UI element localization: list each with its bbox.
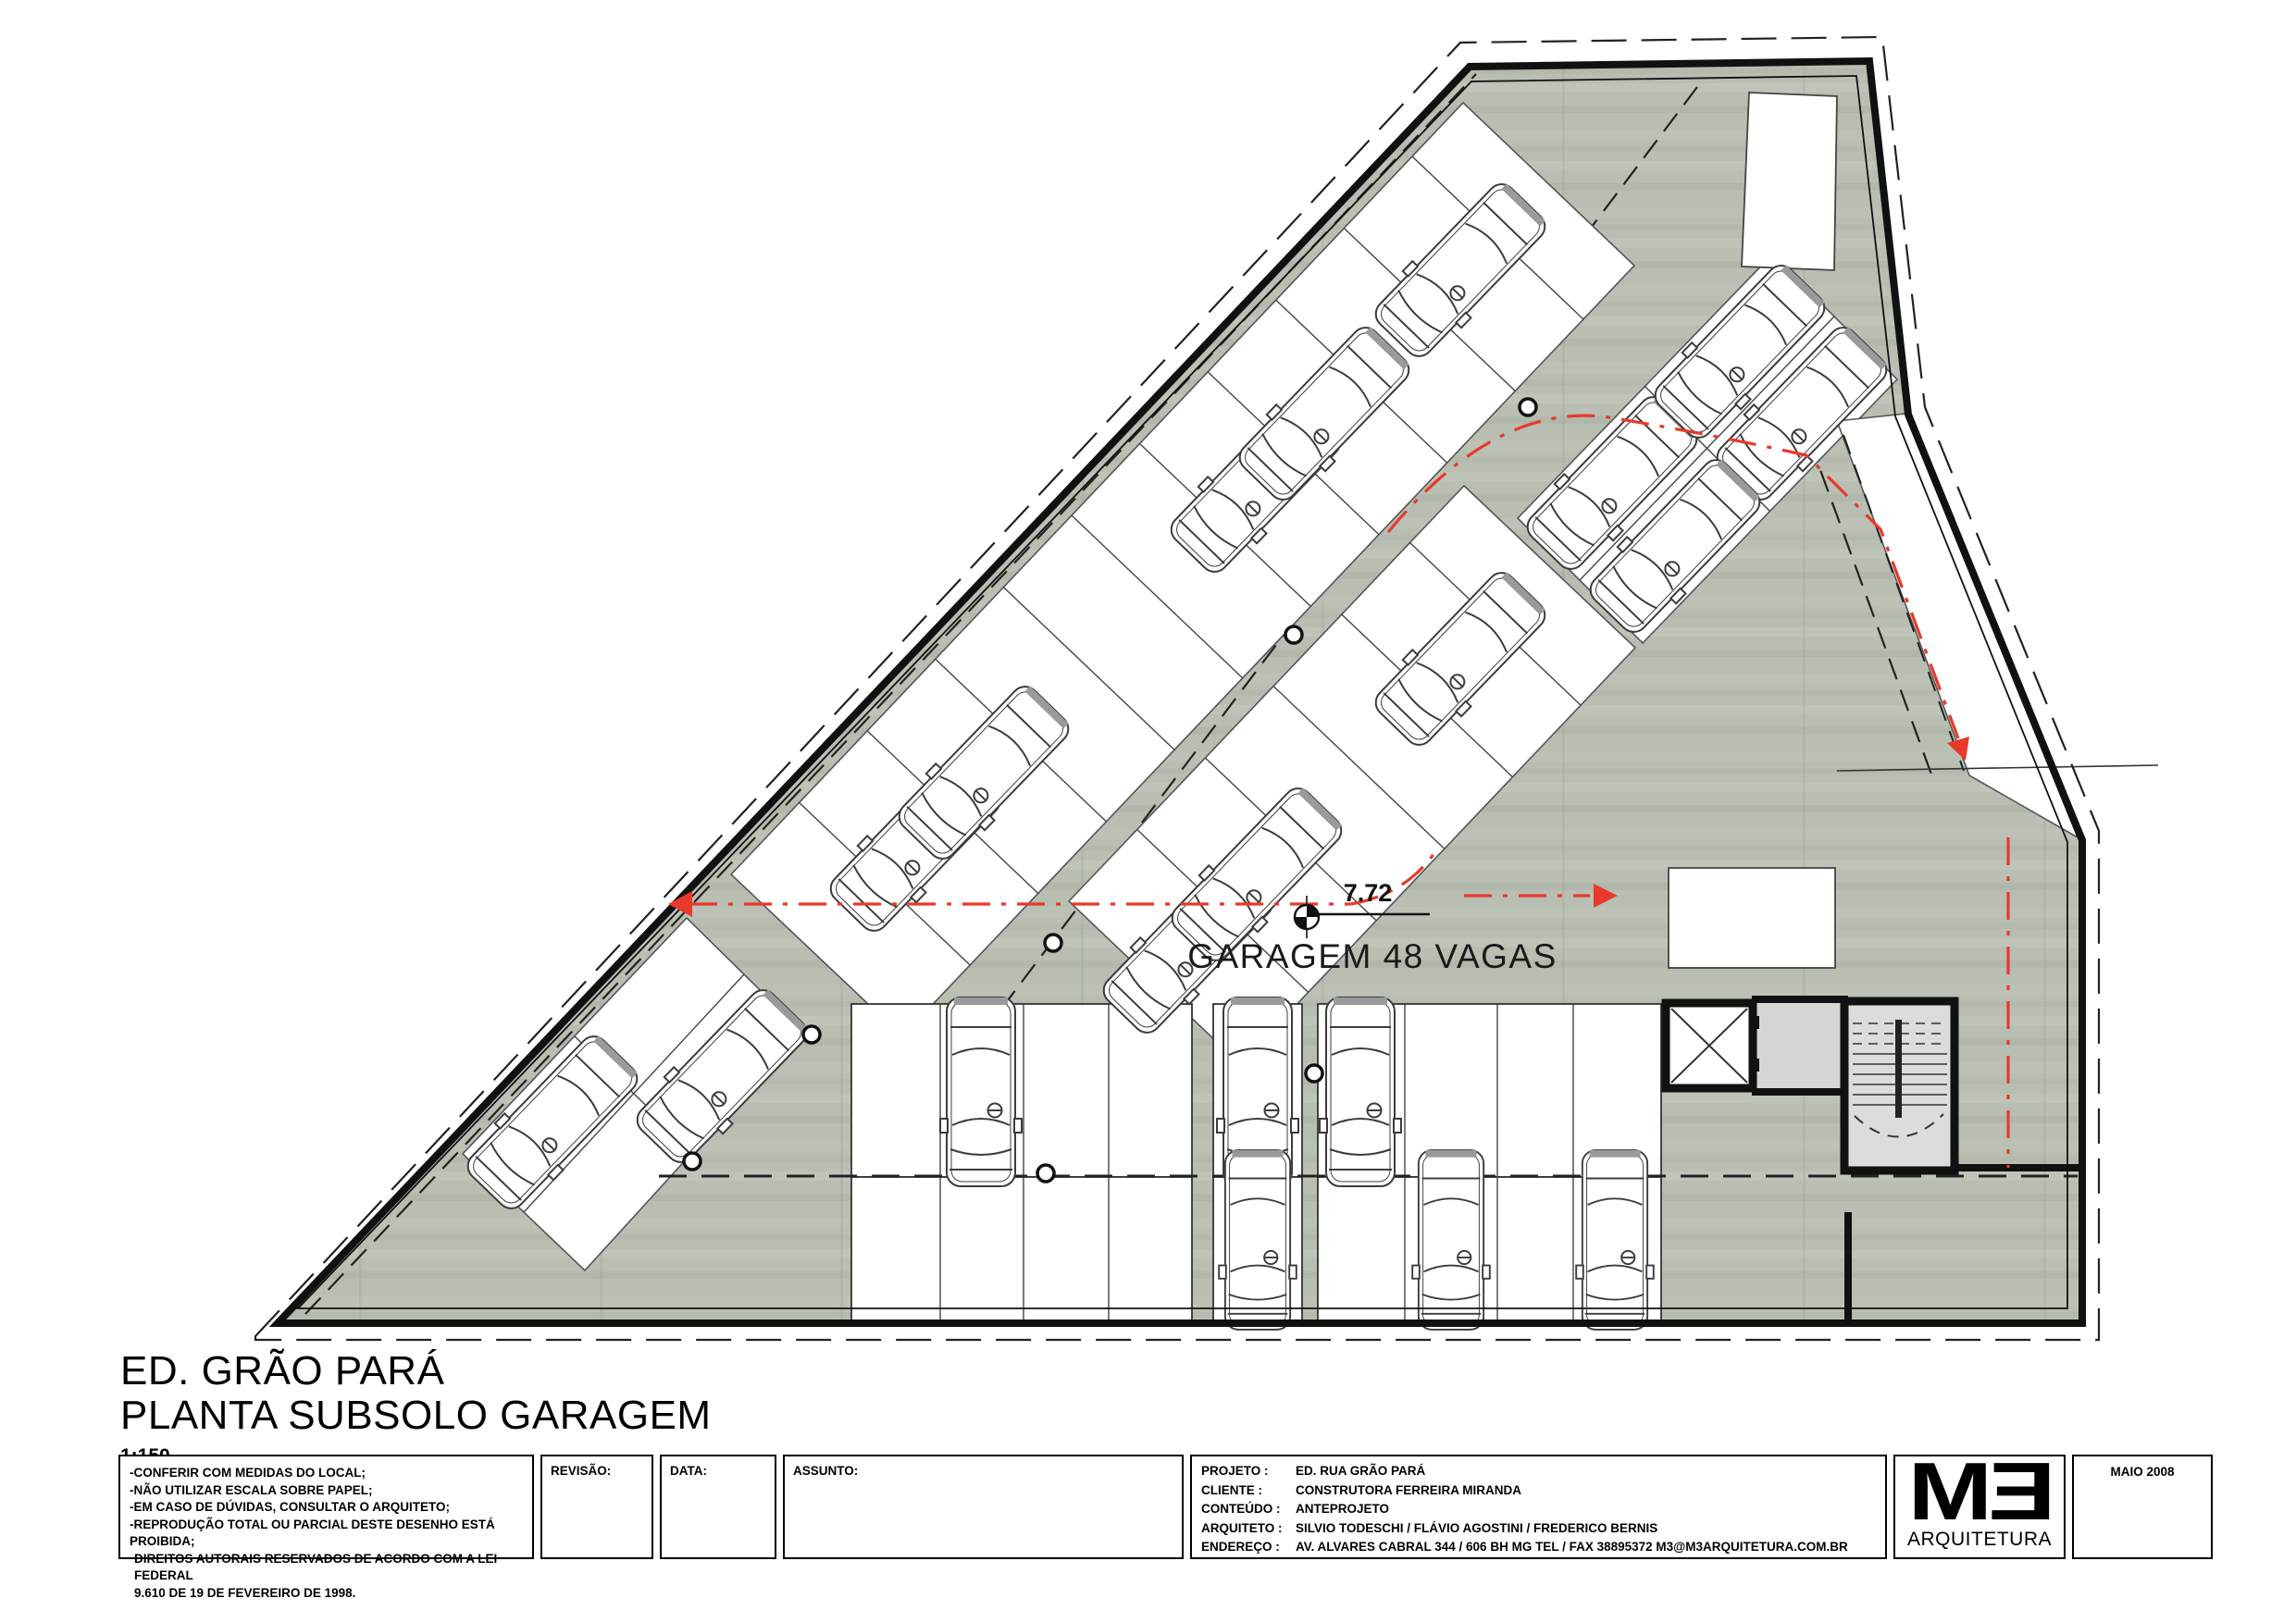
column-marker — [1037, 1165, 1054, 1182]
column-marker — [684, 1153, 701, 1170]
car-icon — [1412, 1150, 1490, 1330]
elevator-icon — [1666, 1003, 1759, 1088]
date-box: DATA: — [660, 1455, 776, 1559]
cliente-value: CONSTRUTORA FERREIRA MIRANDA — [1296, 1483, 1885, 1497]
endereco-label: ENDEREÇO : — [1201, 1540, 1296, 1554]
car-icon — [1219, 1150, 1297, 1330]
garage-label: GARAGEM 48 VAGAS — [1187, 937, 1558, 975]
cliente-label: CLIENTE : — [1201, 1483, 1296, 1497]
issue-date: MAIO 2008 — [2110, 1465, 2174, 1479]
drawing-title: PLANTA SUBSOLO GARAGEM — [120, 1394, 712, 1438]
m3-logo: MƎ — [1893, 1455, 2066, 1529]
stair-icon — [1844, 1001, 1955, 1171]
level-value: 7.72 — [1344, 879, 1393, 907]
conteudo-label: CONTEÚDO : — [1201, 1502, 1296, 1516]
car-icon — [1576, 1150, 1654, 1330]
drawing-sheet: 7.72 GARAGEM 48 VAGAS ED. GRÃO PARÁ PLAN… — [0, 0, 2296, 1623]
endereco-value: AV. ALVARES CABRAL 344 / 606 BH MG TEL /… — [1296, 1540, 1885, 1554]
column-marker — [1285, 626, 1302, 643]
note-line: DIREITOS AUTORAIS RESERVADOS DE ACORDO C… — [130, 1551, 523, 1585]
column-marker — [1306, 1065, 1322, 1082]
notes-box: -CONFERIR COM MEDIDAS DO LOCAL; -NÃO UTI… — [118, 1455, 534, 1559]
arquiteto-label: ARQUITETO : — [1201, 1521, 1296, 1535]
conteudo-value: ANTEPROJETO — [1296, 1502, 1885, 1516]
note-line: -CONFERIR COM MEDIDAS DO LOCAL; — [130, 1465, 523, 1482]
project-title: ED. GRÃO PARÁ — [120, 1349, 712, 1394]
revision-label: REVISÃO: — [551, 1464, 611, 1478]
note-line: 9.610 DE 19 DE FEVEREIRO DE 1998. — [130, 1585, 523, 1603]
note-line: -NÃO UTILIZAR ESCALA SOBRE PAPEL; — [130, 1482, 523, 1500]
column-marker — [1045, 935, 1061, 951]
arquiteto-value: SILVIO TODESCHI / FLÁVIO AGOSTINI / FRED… — [1296, 1521, 1885, 1535]
elevator-lobby — [1756, 1003, 1844, 1088]
car-icon — [1320, 997, 1401, 1186]
projeto-label: PROJETO : — [1201, 1464, 1296, 1478]
project-info-box: PROJETO : ED. RUA GRÃO PARÁ CLIENTE : CO… — [1190, 1455, 1887, 1559]
column-marker — [1520, 399, 1536, 415]
car-icon — [940, 997, 1022, 1186]
logo-box: MƎ ARQUITETURA — [1893, 1455, 2066, 1559]
floor-plan: 7.72 GARAGEM 48 VAGAS — [0, 0, 2296, 1443]
date-label: DATA: — [670, 1464, 707, 1478]
note-line: -REPRODUÇÃO TOTAL OU PARCIAL DESTE DESEN… — [130, 1517, 523, 1551]
revision-box: REVISÃO: — [540, 1455, 653, 1559]
reserved-area — [1742, 93, 1837, 270]
subject-box: ASSUNTO: — [783, 1455, 1184, 1559]
issue-date-box: MAIO 2008 — [2072, 1455, 2213, 1559]
subject-label: ASSUNTO: — [793, 1464, 858, 1478]
storage-room — [1669, 868, 1835, 968]
note-line: -EM CASO DE DÚVIDAS, CONSULTAR O ARQUITE… — [130, 1499, 523, 1517]
sheet-title: ED. GRÃO PARÁ PLANTA SUBSOLO GARAGEM 1:1… — [120, 1349, 712, 1468]
column-marker — [803, 1026, 820, 1043]
projeto-value: ED. RUA GRÃO PARÁ — [1296, 1464, 1885, 1478]
